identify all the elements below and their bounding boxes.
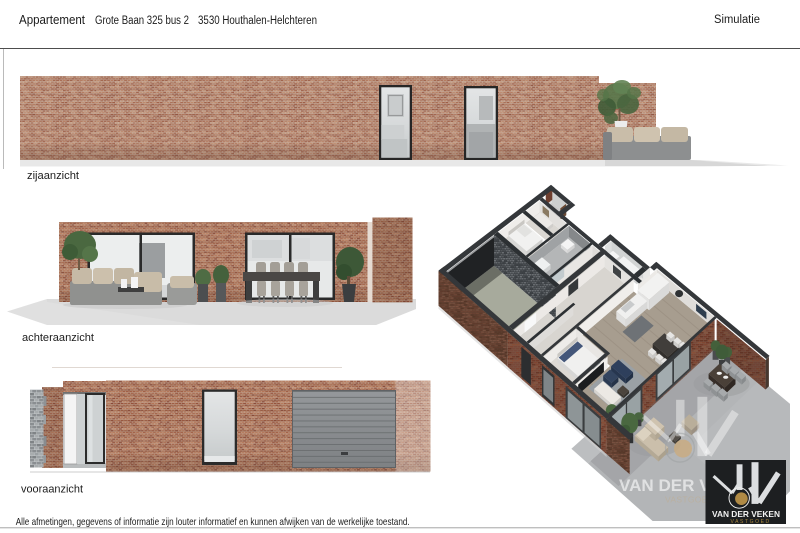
svg-text:Grote Baan 325 bus 2: Grote Baan 325 bus 2 (95, 15, 189, 27)
svg-text:vooraanzicht: vooraanzicht (21, 484, 83, 496)
svg-text:VAN DER VEKEN: VAN DER VEKEN (712, 509, 780, 519)
svg-text:achteraanzicht: achteraanzicht (22, 332, 94, 344)
svg-text:Simulatie: Simulatie (714, 14, 760, 26)
svg-text:Appartement: Appartement (19, 13, 85, 27)
svg-text:VASTGOED: VASTGOED (731, 519, 771, 525)
svg-text:zijaanzicht: zijaanzicht (27, 170, 79, 182)
svg-text:3530 Houthalen-Helchteren: 3530 Houthalen-Helchteren (198, 15, 317, 27)
svg-text:Alle afmetingen, gegevens of i: Alle afmetingen, gegevens of informatie … (16, 516, 410, 528)
